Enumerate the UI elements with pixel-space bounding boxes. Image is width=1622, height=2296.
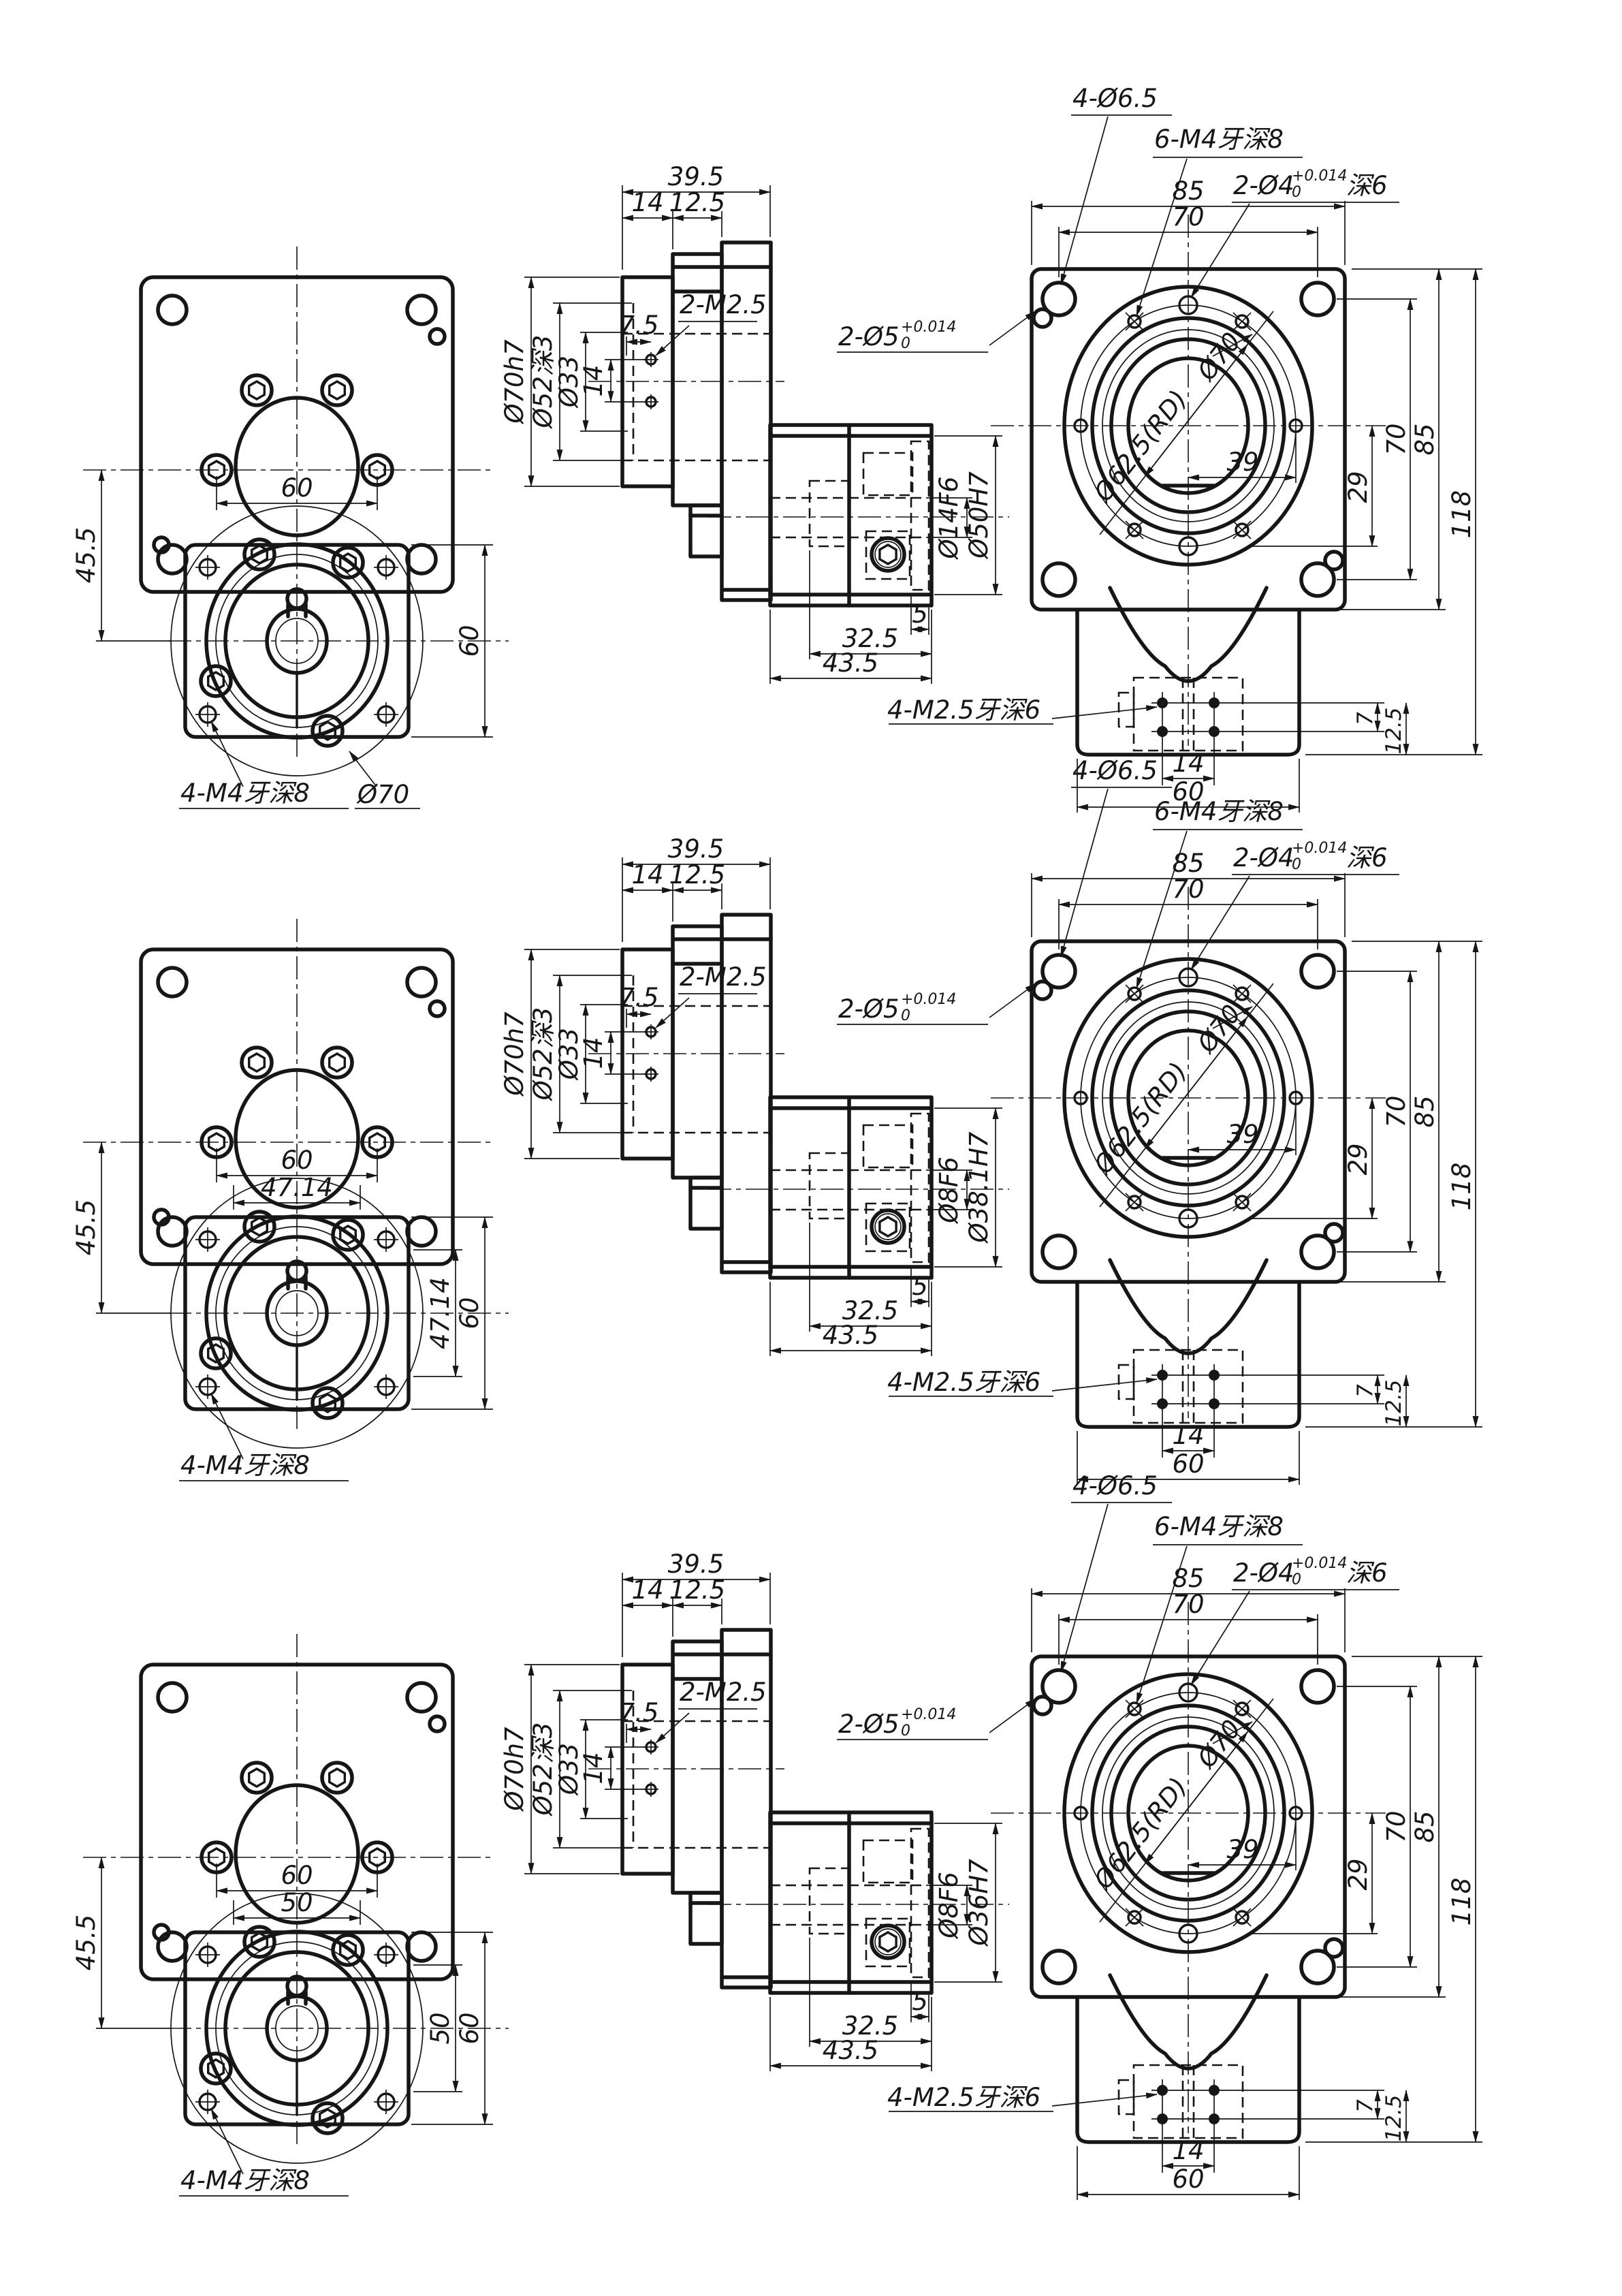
dim-hex-spacing-v: 50 (426, 2012, 455, 2044)
pin5-tol-lower: 0 (901, 1723, 910, 1740)
row3-front-view: 60 50 45.5 50 60 4-M4牙深8 (39, 1610, 515, 2237)
dia-pilot: Ø70h7 (500, 1011, 529, 1097)
pitch-circle-callout: Ø70 (356, 780, 409, 809)
dim-39: 39 (1226, 1120, 1258, 1149)
dim-bottom-hole-spacing: 14 (1172, 2136, 1204, 2165)
corner-holes-callout: 4-Ø6.5 (1072, 756, 1158, 785)
register-label: Ø62.5(RD) (1087, 385, 1193, 508)
dim-hole-pitch-top: 70 (1172, 202, 1204, 232)
thread-callout: 4-M4牙深8 (180, 779, 310, 808)
bottom-threads-callout: 4-M2.5牙深6 (887, 1368, 1040, 1397)
dim-screw-span: 14 (579, 1037, 608, 1069)
dim-height: 85 (1410, 1095, 1440, 1127)
dim-total-width: 39.5 (668, 162, 724, 191)
dim-39: 39 (1226, 447, 1258, 477)
dim-29: 29 (1343, 1858, 1373, 1890)
dia-counterbore: Ø52深3 (528, 1007, 558, 1102)
dim-hole-pitch-top: 70 (1172, 875, 1204, 904)
dim-flange-height: 60 (455, 2012, 484, 2044)
screw-callout: 2-M2.5 (680, 1678, 767, 1707)
pin4-depth: 深6 (1346, 171, 1388, 200)
dim-screw-offset: 7.5 (619, 1698, 659, 1727)
thread-holes-callout: 6-M4牙深8 (1154, 125, 1284, 154)
thread-holes-callout: 6-M4牙深8 (1154, 797, 1284, 826)
pin5-callout: 2-Ø5 (838, 1710, 900, 1739)
pin4-tol-upper: +0.014 (1292, 1555, 1347, 1572)
dim-hex-spacing-v: 47.14 (426, 1277, 455, 1349)
bottom-threads-callout: 4-M2.5牙深6 (887, 2083, 1040, 2112)
dim-total-height: 118 (1447, 1163, 1476, 1211)
corner-holes-callout: 4-Ø6.5 (1072, 1471, 1158, 1500)
pin4-depth: 深6 (1346, 843, 1388, 872)
dim-height: 85 (1410, 1810, 1440, 1842)
dim-step1: 14 (631, 188, 663, 217)
dim-step2: 12.5 (669, 188, 725, 217)
dim-hole-pitch-top: 70 (1172, 1590, 1204, 1619)
dim-12-5: 12.5 (1382, 2094, 1406, 2141)
row3-back-view: 4-Ø6.5 6-M4牙深8 2-Ø4 +0.014 0 深6 85 70 2-… (827, 1432, 1522, 2229)
register-label: Ø62.5(RD) (1087, 1057, 1193, 1180)
pin4-tol-upper: +0.014 (1292, 168, 1347, 185)
dim-vertical-left: 45.5 (71, 527, 101, 583)
dim-width-top: 85 (1172, 176, 1204, 206)
dia-counterbore: Ø52深3 (528, 335, 558, 430)
pin5-tol-lower: 0 (901, 335, 910, 352)
cad-sheet: { "drawing": { "background": "#ffffff", … (0, 0, 1622, 2296)
pin4-callout: 2-Ø4 (1233, 1558, 1294, 1588)
dia-counterbore: Ø52深3 (528, 1723, 558, 1817)
dim-bolt-spacing: 60 (281, 1861, 313, 1890)
dim-flange-height: 60 (455, 1297, 484, 1329)
pin4-tol-lower: 0 (1292, 856, 1301, 873)
pin5-tol-lower: 0 (901, 1007, 910, 1024)
corner-holes-callout: 4-Ø6.5 (1072, 84, 1158, 113)
dia-pilot: Ø70h7 (500, 339, 529, 425)
dim-29: 29 (1343, 471, 1373, 503)
dim-width-top: 85 (1172, 1564, 1204, 1593)
pin4-depth: 深6 (1346, 1558, 1388, 1588)
dim-total-width: 39.5 (668, 1550, 724, 1579)
row2-front-view: 60 47.14 45.5 47.14 60 4-M4牙深8 (39, 895, 515, 1522)
dim-width-top: 85 (1172, 849, 1204, 878)
screw-callout: 2-M2.5 (680, 290, 767, 319)
thread-holes-callout: 6-M4牙深8 (1154, 1512, 1284, 1541)
pin4-callout: 2-Ø4 (1233, 171, 1294, 200)
pin5-tol-upper: +0.014 (901, 319, 956, 336)
dim-pitch-v: 70 (1382, 1095, 1411, 1127)
dim-screw-span: 14 (579, 1752, 608, 1784)
dim-total-height: 118 (1447, 490, 1476, 539)
dim-7: 7 (1353, 2099, 1378, 2113)
pin4-callout: 2-Ø4 (1233, 843, 1294, 872)
pin4-tol-upper: +0.014 (1292, 840, 1347, 857)
dim-vertical-left: 45.5 (71, 1915, 101, 1970)
dim-pitch-v: 70 (1382, 1810, 1411, 1842)
thread-callout: 4-M4牙深8 (180, 1451, 310, 1480)
dim-screw-span: 14 (579, 364, 608, 396)
screw-callout: 2-M2.5 (680, 962, 767, 992)
dim-step1: 14 (631, 860, 663, 890)
dim-screw-offset: 7.5 (619, 311, 659, 340)
register-label: Ø62.5(RD) (1087, 1772, 1193, 1896)
row1-front-view: 60 45.5 60 4-M4牙深8 Ø70 (39, 223, 515, 849)
dim-29: 29 (1343, 1143, 1373, 1175)
dim-height: 85 (1410, 423, 1440, 455)
dim-vertical-left: 45.5 (71, 1199, 101, 1255)
dim-step2: 12.5 (669, 1575, 725, 1605)
pin4-tol-lower: 0 (1292, 1571, 1301, 1588)
pin4-tol-lower: 0 (1292, 184, 1301, 201)
dim-bolt-spacing: 60 (281, 473, 313, 503)
dim-screw-offset: 7.5 (619, 983, 659, 1012)
dim-hex-spacing-h: 50 (281, 1888, 313, 1917)
dim-total-height: 118 (1447, 1878, 1476, 1926)
dim-pitch-v: 70 (1382, 423, 1411, 455)
dim-7: 7 (1353, 1384, 1378, 1398)
dim-39: 39 (1226, 1835, 1258, 1864)
row2-back-view: 4-Ø6.5 6-M4牙深8 2-Ø4 +0.014 0 深6 85 70 2-… (827, 717, 1522, 1513)
dim-neck-width: 60 (1172, 2165, 1204, 2194)
thread-callout: 4-M4牙深8 (180, 2166, 310, 2195)
pin5-callout: 2-Ø5 (838, 322, 900, 351)
dia-pilot: Ø70h7 (500, 1727, 529, 1812)
dim-hex-spacing-h: 47.14 (261, 1173, 333, 1202)
pin5-callout: 2-Ø5 (838, 994, 900, 1024)
dim-flange-height: 60 (455, 625, 484, 657)
pin5-tol-upper: +0.014 (901, 991, 956, 1008)
pin5-tol-upper: +0.014 (901, 1706, 956, 1723)
dim-step1: 14 (631, 1575, 663, 1605)
dim-12-5: 12.5 (1382, 1379, 1406, 1426)
dim-step2: 12.5 (669, 860, 725, 890)
dim-total-width: 39.5 (668, 834, 724, 864)
dim-bolt-spacing: 60 (281, 1146, 313, 1175)
